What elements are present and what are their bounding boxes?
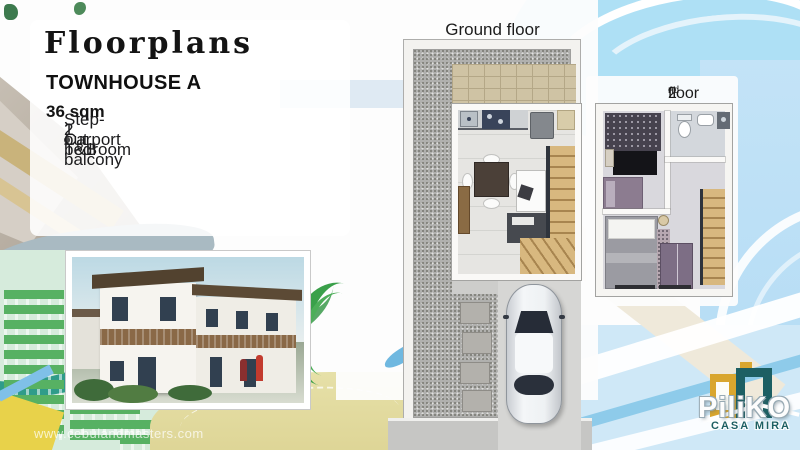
piliko-watermark: PiliKO (698, 392, 800, 425)
bedroom2-bed (605, 216, 658, 289)
car-mirror (559, 315, 565, 319)
toilet-icon (678, 121, 691, 138)
stepping-stone (460, 302, 490, 324)
photo-person (240, 359, 247, 381)
ground-floor-label: Ground floor (405, 20, 580, 40)
corner-cabinet (557, 110, 575, 130)
kitchen-sink (460, 111, 478, 127)
dining-table (475, 163, 508, 196)
stepping-stone (462, 390, 492, 412)
ground-stairs-winder (520, 238, 575, 274)
photo-window (206, 309, 218, 327)
photo-window (160, 297, 176, 321)
second-floor-stairs (700, 189, 725, 285)
unit-name: TOWNHOUSE A (46, 72, 346, 95)
car-rear-window (514, 375, 554, 395)
flyer-canvas: Floorplans TOWNHOUSE A 36 sqm 2 bedroom … (0, 0, 800, 450)
bed-pillow (608, 219, 655, 239)
ground-stairs (546, 146, 575, 242)
stepping-stone (462, 332, 492, 354)
interior-wall (665, 157, 725, 162)
photo-window (112, 297, 128, 321)
car-topview (506, 284, 562, 424)
bedroom1-side-table (605, 149, 614, 167)
bathroom-sink (697, 114, 714, 126)
photo-balcony (100, 329, 196, 345)
photo-person (256, 355, 263, 381)
shower (717, 112, 730, 129)
bedside-table (658, 215, 669, 226)
photo-door (210, 357, 222, 387)
car-roof (515, 333, 553, 373)
photo-balcony2 (196, 335, 296, 348)
door-sill (659, 285, 691, 289)
interior-wall (603, 209, 670, 214)
bedroom1-bed (603, 177, 643, 209)
website-watermark: www.cebulandmasters.com (34, 426, 334, 441)
info-panel: Floorplans TOWNHOUSE A 36 sqm 2 bedroom … (30, 20, 350, 236)
bed-blanket-fold (606, 253, 657, 263)
photo-bush (168, 385, 212, 401)
second-floor-plan (596, 104, 732, 296)
bg-green-speck (4, 4, 18, 20)
kitchen-stove (482, 110, 510, 129)
door-sill (615, 285, 655, 289)
bedroom1-rug (605, 113, 661, 151)
bg-green-speck2 (74, 2, 86, 15)
dining-chair (483, 198, 500, 209)
page-title: Floorplans (44, 26, 344, 61)
feature-label: Carport (64, 130, 121, 150)
photo-bush (108, 385, 158, 403)
photo-bush (74, 379, 114, 401)
bathroom (670, 111, 725, 157)
photo-window (266, 313, 278, 331)
car-mirror (503, 315, 509, 319)
photo-window (110, 361, 124, 381)
wall-shelf (458, 186, 470, 234)
car-windshield (511, 311, 557, 333)
stepping-stone (460, 362, 490, 384)
photo-window (236, 311, 248, 329)
toilet-tank (677, 114, 692, 121)
wardrobe (660, 243, 693, 289)
refrigerator (530, 112, 554, 139)
ground-floor-room (452, 104, 581, 280)
townhouse-photo (66, 251, 310, 409)
bedroom1-mat (613, 151, 657, 175)
photo-house-front (100, 283, 196, 393)
